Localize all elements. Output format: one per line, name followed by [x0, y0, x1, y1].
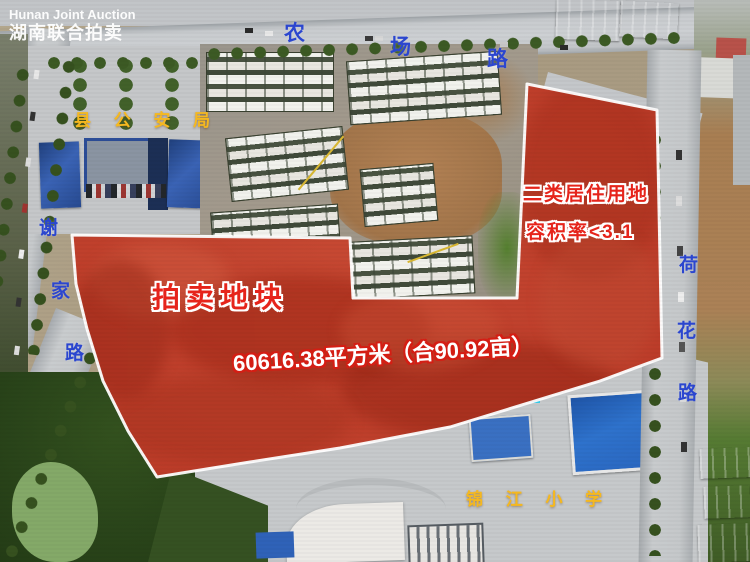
plot-ratio-label: 容积率<3.1 — [526, 217, 635, 244]
road-label-xiejia-char: 家 — [51, 276, 70, 303]
auction-plot-fill — [0, 0, 750, 562]
road-label-xiejia-char: 谢 — [39, 213, 58, 240]
aerial-auction-map: 农 场 路 谢 家 路 荷 花 路 县 公 安 局 锦 江 小 学 拍卖地块 二… — [0, 0, 750, 562]
road-label-hehua-char: 花 — [677, 316, 696, 343]
watermark-line-cn: 湖南联合拍卖 — [9, 23, 136, 44]
road-label-xiejia-char: 路 — [65, 338, 84, 365]
watermark-line-en: Hunan Joint Auction — [9, 8, 136, 23]
road-label-nongchang-char: 场 — [390, 31, 411, 61]
road-label-nongchang-char: 路 — [487, 43, 508, 73]
land-use-label: 二类居住用地 — [523, 179, 649, 206]
police-bureau-label: 县 公 安 局 — [74, 106, 219, 131]
school-label: 锦 江 小 学 — [466, 485, 611, 510]
road-label-hehua-char: 荷 — [679, 250, 698, 277]
auction-plot-overlay — [0, 0, 750, 562]
road-label-hehua-char: 路 — [678, 378, 697, 405]
plot-title-label: 拍卖地块 — [152, 276, 288, 316]
watermark: Hunan Joint Auction 湖南联合拍卖 — [9, 8, 136, 44]
road-label-nongchang-char: 农 — [284, 17, 305, 47]
